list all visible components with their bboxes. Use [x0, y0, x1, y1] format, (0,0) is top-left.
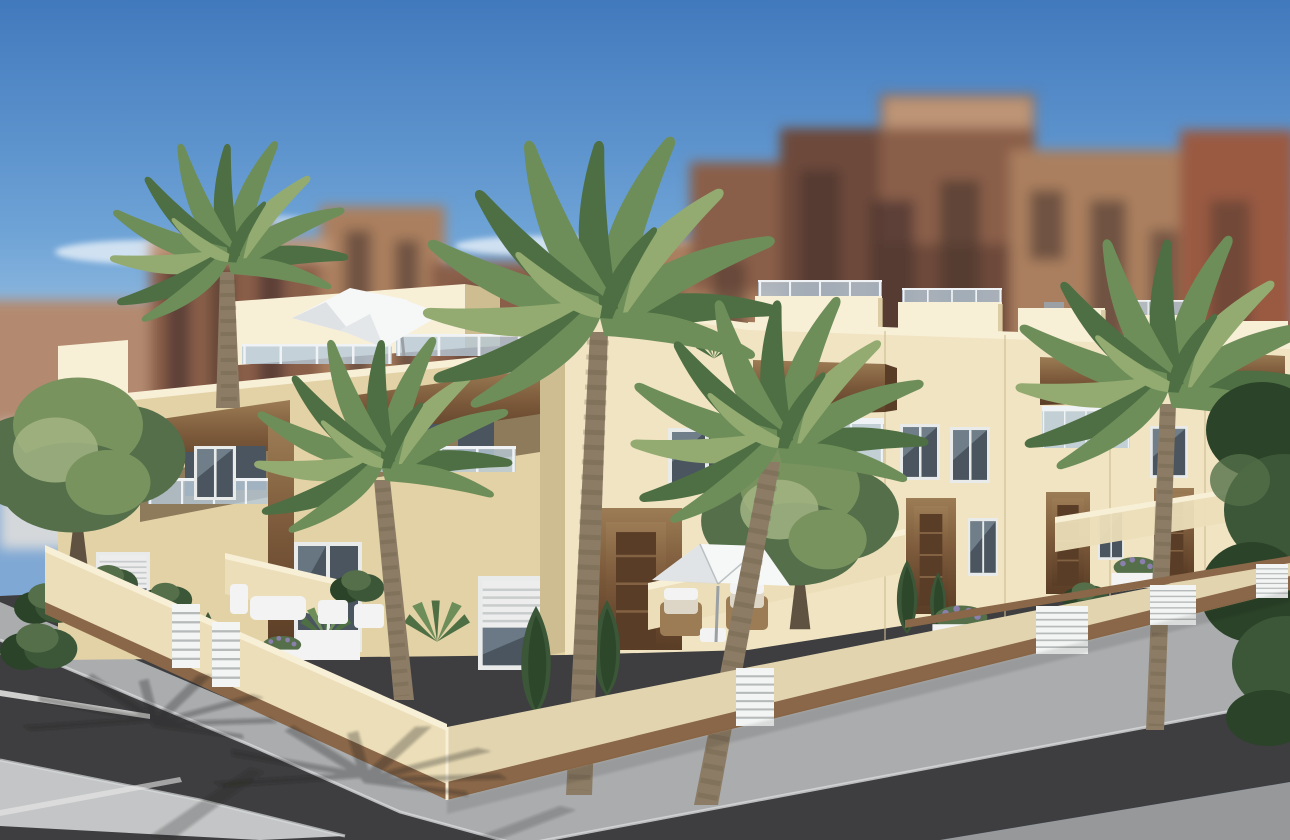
- window: [950, 427, 990, 483]
- window: [900, 424, 940, 480]
- window: [194, 446, 236, 500]
- gate: [172, 604, 200, 668]
- gate: [212, 622, 240, 687]
- window: [968, 518, 998, 576]
- gate: [736, 668, 774, 726]
- architectural-render: [0, 0, 1290, 840]
- roof-balustrade: [242, 344, 392, 364]
